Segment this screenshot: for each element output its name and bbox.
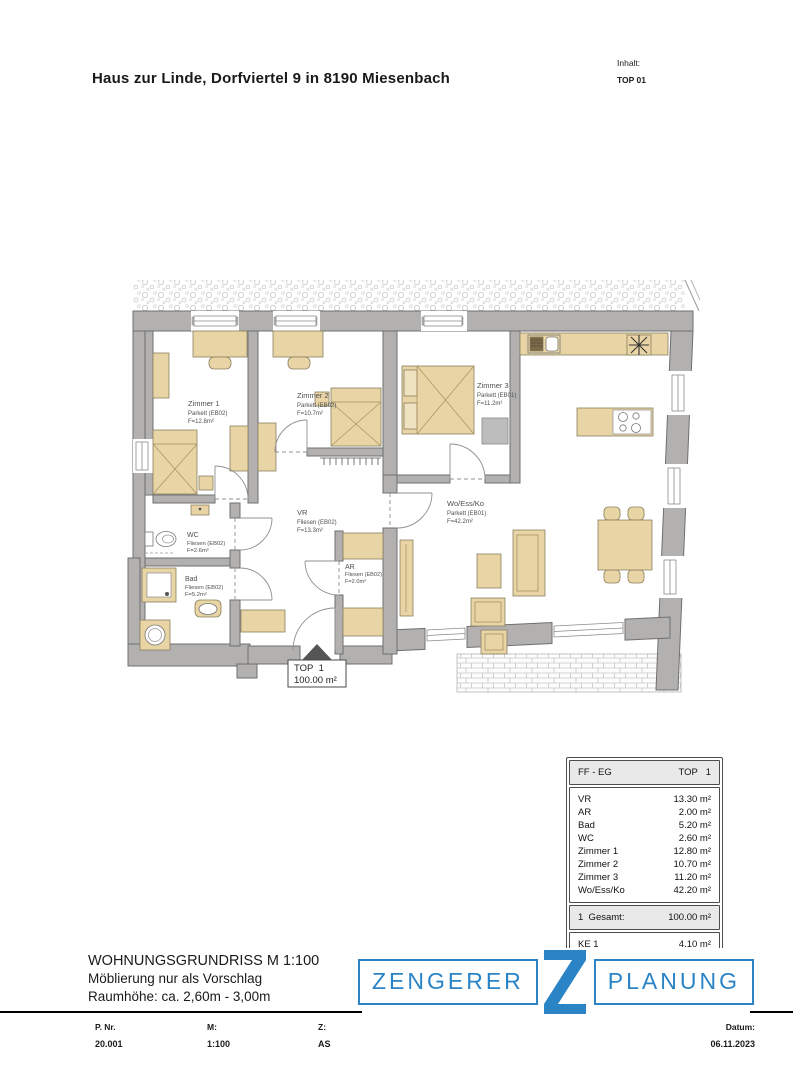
table-top-number: TOP 1 — [678, 767, 711, 778]
furniture — [140, 331, 668, 654]
window-bottom-terrace-door — [554, 623, 623, 638]
terrace-paving — [457, 654, 681, 692]
door-zimmer2 — [275, 420, 307, 452]
svg-text:Fliesen (EB02): Fliesen (EB02) — [345, 572, 382, 578]
hall-bench — [241, 610, 285, 632]
inhalt-value: TOP 01 — [617, 72, 646, 89]
door-bad — [235, 568, 272, 600]
window-right-3 — [659, 556, 685, 598]
bad-fixtures — [140, 568, 221, 650]
table-row: Zimmer 112.80 m² — [578, 845, 711, 858]
gravel-area — [133, 280, 700, 311]
svg-text:F=10.7m²: F=10.7m² — [297, 411, 323, 417]
label-zimmer2: Zimmer 2 Parkett (EB02) F=10.7m² — [297, 391, 336, 417]
table-title: FF - EG — [578, 767, 612, 778]
window-top-3 — [421, 311, 467, 331]
area-table-body: VR13.30 m² AR2.00 m² Bad5.20 m² WC2.60 m… — [569, 787, 720, 903]
label-zimmer1: Zimmer 1 Parkett (EB02) F=12.8m² — [188, 399, 227, 425]
window-top-2 — [273, 311, 320, 331]
area-table-header: FF - EG TOP 1 — [569, 760, 720, 785]
door-wc — [235, 518, 272, 550]
svg-text:Fliesen (EB02): Fliesen (EB02) — [297, 520, 337, 526]
boiler-star-icon — [629, 335, 649, 355]
plan-sheet: Haus zur Linde, Dorfviertel 9 in 8190 Mi… — [0, 0, 793, 1080]
svg-text:Parkett (EB02): Parkett (EB02) — [188, 411, 227, 417]
svg-text:TOP 1: TOP 1 — [294, 663, 324, 674]
label-wc: WC Fliesen (EB02) F=2.6m² — [187, 532, 225, 554]
window-bottom-1 — [427, 628, 465, 641]
door-zimmer3 — [450, 444, 485, 479]
coat-rack — [320, 458, 381, 465]
inhalt-label: Inhalt: — [617, 55, 646, 72]
svg-text:Bad: Bad — [185, 576, 198, 583]
label-vr: VR Fliesen (EB02) F=13.3m² — [297, 508, 337, 534]
kitchen-stove-island — [577, 408, 653, 436]
logo-right-box: PLANUNG — [594, 959, 754, 1005]
page-title: Haus zur Linde, Dorfviertel 9 in 8190 Mi… — [92, 70, 450, 87]
field-m: M: 1:100 — [207, 1019, 230, 1053]
svg-text:Parkett (EB01): Parkett (EB01) — [447, 511, 486, 517]
svg-text:VR: VR — [297, 508, 308, 517]
table-row: Wo/Ess/Ko42.20 m² — [578, 884, 711, 897]
svg-text:Zimmer 1: Zimmer 1 — [188, 399, 220, 408]
drawing-note-1: Möblierung nur als Vorschlag — [88, 970, 319, 988]
window-top-1 — [191, 311, 239, 331]
dining-set — [598, 507, 652, 583]
table-row: AR2.00 m² — [578, 806, 711, 819]
label-bad: Bad Fliesen (EB02) F=5.2m² — [185, 576, 223, 598]
svg-text:WC: WC — [187, 532, 199, 539]
area-table-total: 1 Gesamt: 100.00 m² — [569, 905, 720, 930]
table-row: VR13.30 m² — [578, 793, 711, 806]
svg-text:Zimmer 3: Zimmer 3 — [477, 381, 509, 390]
table-row: Zimmer 210.70 m² — [578, 858, 711, 871]
svg-text:F=11.2m²: F=11.2m² — [477, 401, 502, 407]
svg-text:Fliesen (EB02): Fliesen (EB02) — [187, 541, 225, 547]
door-living — [390, 493, 432, 528]
drawing-title: WOHNUNGSGRUNDRISS M 1:100 — [88, 952, 319, 970]
drawing-note-2: Raumhöhe: ca. 2,60m - 3,00m — [88, 988, 319, 1006]
svg-text:F=2.0m²: F=2.0m² — [345, 579, 366, 585]
field-pnr: P. Nr. 20.001 — [95, 1019, 123, 1053]
inhalt-block: Inhalt: TOP 01 — [617, 55, 646, 89]
svg-text:Parkett (EB02): Parkett (EB02) — [297, 403, 336, 409]
window-right-1 — [667, 371, 693, 415]
field-datum: Datum: 06.11.2023 — [710, 1019, 755, 1053]
svg-text:F=12.8m²: F=12.8m² — [188, 419, 214, 425]
label-woessko: Wo/Ess/Ko Parkett (EB01) F=42.2m² — [447, 499, 486, 525]
window-right-2 — [663, 464, 689, 508]
svg-text:AR: AR — [345, 564, 355, 571]
zengerer-planung-logo: ZENGERER PLANUNG — [362, 948, 750, 1016]
area-table: FF - EG TOP 1 VR13.30 m² AR2.00 m² Bad5.… — [566, 757, 723, 960]
svg-text:F=13.3m²: F=13.3m² — [297, 528, 323, 534]
table-row: Zimmer 311.20 m² — [578, 871, 711, 884]
svg-text:Wo/Ess/Ko: Wo/Ess/Ko — [447, 499, 484, 508]
kitchen-counter — [520, 333, 668, 355]
drawing-info: WOHNUNGSGRUNDRISS M 1:100 Möblierung nur… — [88, 952, 319, 1006]
table-row: WC2.60 m² — [578, 832, 711, 845]
label-ar: AR Fliesen (EB02) F=2.0m² — [345, 564, 382, 585]
entrance-arrow-icon — [302, 644, 332, 660]
logo-left-box: ZENGERER — [358, 959, 538, 1005]
svg-text:F=5.2m²: F=5.2m² — [185, 592, 207, 598]
table-row: Bad5.20 m² — [578, 819, 711, 832]
svg-text:Zimmer 2: Zimmer 2 — [297, 391, 329, 400]
door-entry — [293, 608, 335, 650]
window-left — [133, 439, 153, 473]
floor-plan: Zimmer 1 Parkett (EB02) F=12.8m² Zimmer … — [125, 278, 700, 702]
floor-plan-svg: Zimmer 1 Parkett (EB02) F=12.8m² Zimmer … — [125, 278, 700, 702]
svg-text:Parkett (EB01): Parkett (EB01) — [477, 393, 516, 399]
svg-text:F=2.6m²: F=2.6m² — [187, 548, 209, 554]
svg-text:F=42.2m²: F=42.2m² — [447, 519, 473, 525]
door-ar — [305, 561, 339, 595]
svg-text:100.00 m²: 100.00 m² — [294, 675, 337, 686]
svg-text:Fliesen (EB02): Fliesen (EB02) — [185, 585, 223, 591]
logo-z-icon — [543, 950, 589, 1014]
field-z: Z: AS — [318, 1019, 331, 1053]
